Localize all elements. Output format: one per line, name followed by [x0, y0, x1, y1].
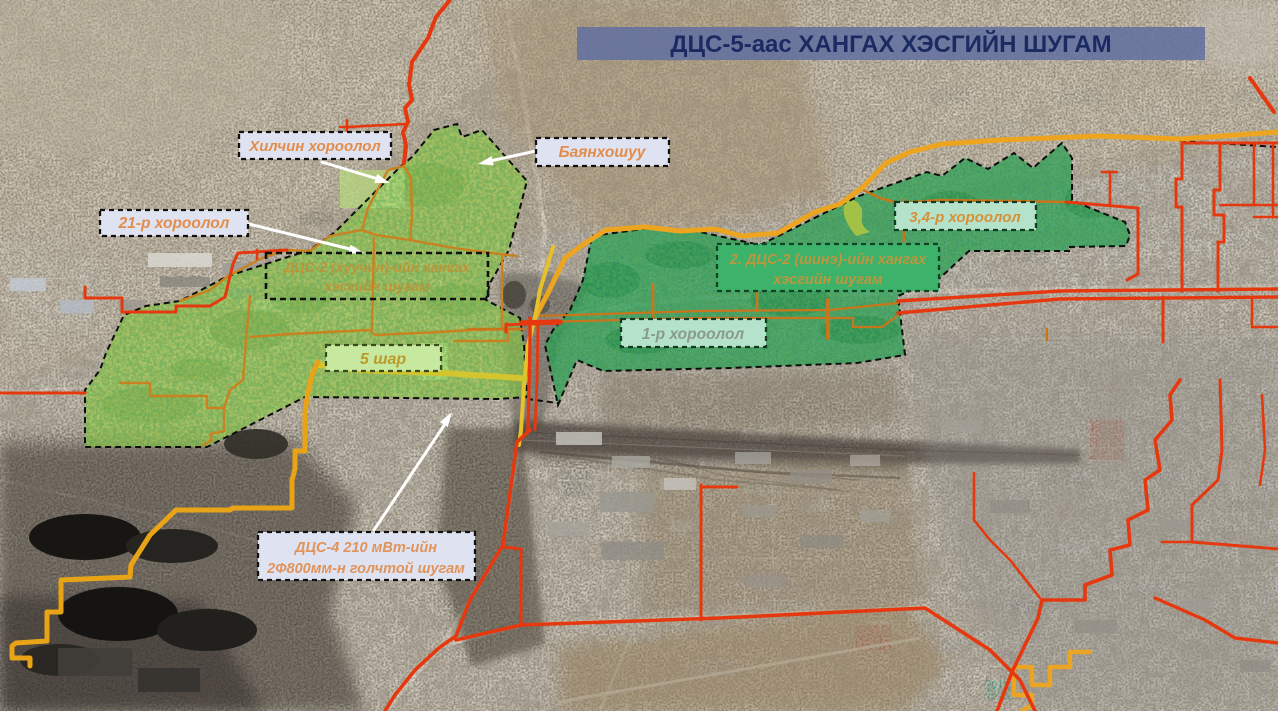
svg-text:2. ДЦС-2 (шинэ)-ийн хангах: 2. ДЦС-2 (шинэ)-ийн хангах	[729, 252, 927, 268]
svg-text:Баянхошуу: Баянхошуу	[559, 144, 647, 161]
svg-text:Хилчин хороолол: Хилчин хороолол	[248, 138, 381, 155]
svg-text:ДЦС-4 210 мВт-ийн: ДЦС-4 210 мВт-ийн	[293, 540, 437, 556]
svg-text:ДЦС-2 (хуучин)-ийн хангах: ДЦС-2 (хуучин)-ийн хангах	[283, 259, 471, 275]
svg-text:1-р хороолол: 1-р хороолол	[642, 326, 745, 343]
svg-text:2Ф800мм-н голчтой шугам: 2Ф800мм-н голчтой шугам	[266, 561, 465, 577]
svg-text:5 шар: 5 шар	[360, 351, 406, 368]
svg-text:хэсгийн шугам: хэсгийн шугам	[323, 278, 430, 294]
svg-text:3,4-р хороолол: 3,4-р хороолол	[909, 209, 1021, 226]
svg-text:хэсгийн шугам: хэсгийн шугам	[772, 272, 883, 288]
svg-text:21-р хороолол: 21-р хороолол	[118, 215, 230, 232]
svg-text:ДЦС-5-аас ХАНГАХ ХЭСГИЙН ШУГАМ: ДЦС-5-аас ХАНГАХ ХЭСГИЙН ШУГАМ	[670, 30, 1111, 58]
